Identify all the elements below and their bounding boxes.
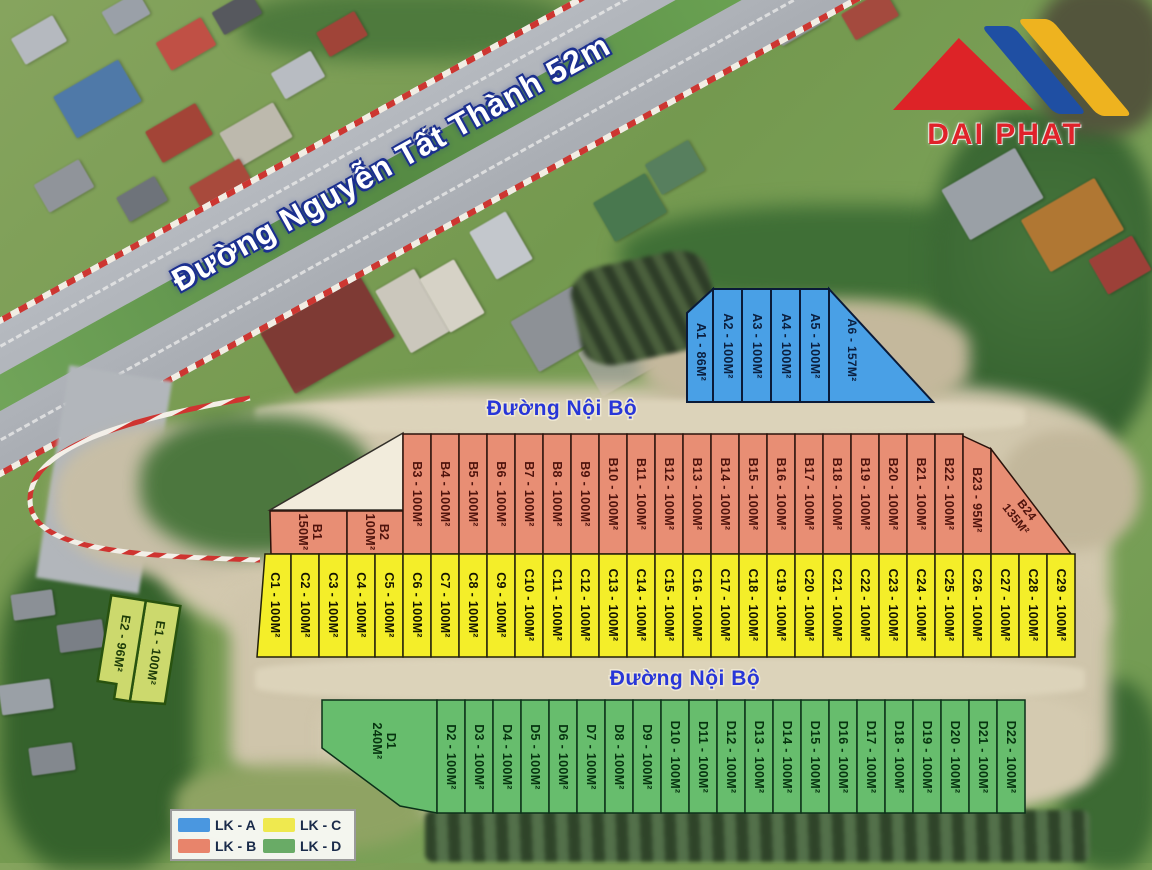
plot-label-C14: C14 - 100M² [634,569,648,642]
plot-label-D22: D22 - 100M² [1004,721,1018,794]
plot-label-B11: B11 - 100M² [634,458,648,530]
plot-label-B13: B13 - 100M² [690,458,704,531]
block-e-group: E1 - 100M²E2 - 96M² [95,595,180,707]
plot-label-D13: D13 - 100M² [752,721,766,794]
legend-swatch-blue [178,818,210,832]
legend-item-lk-d: LK - D [263,838,348,854]
plot-label-D5: D5 - 100M² [528,724,542,790]
plot-label-A4: A4 - 100M² [779,313,793,379]
plot-label-B14: B14 - 100M² [718,458,732,531]
plot-label-D12: D12 - 100M² [724,721,738,794]
plot-label-C27: C27 - 100M² [998,569,1012,642]
plot-label-D10: D10 - 100M² [668,721,682,794]
plot-label-B23: B23 - 95M² [970,467,984,533]
plot-label-A2: A2 - 100M² [721,313,735,379]
plot-label-D17: D17 - 100M² [864,721,878,794]
unassigned-parcel [270,433,403,510]
plot-label-C12: C12 - 100M² [578,569,592,642]
legend: LK - A LK - C LK - B LK - D [170,809,356,861]
plot-A6 [829,289,933,402]
plot-label-C1: C1 - 100M² [268,572,282,638]
legend-item-lk-c: LK - C [263,817,348,833]
plot-label-C8: C8 - 100M² [466,572,480,638]
internal-road-label-top: Đường Nội Bộ [487,397,637,420]
plot-label-B2: 100M² [363,514,377,551]
plot-label-B7: B7 - 100M² [522,461,536,527]
legend-label: LK - A [215,817,256,833]
plot-label-C17: C17 - 100M² [718,569,732,642]
plot-label-B6: B6 - 100M² [494,461,508,527]
legend-item-lk-a: LK - A [178,817,263,833]
plot-label-C2: C2 - 100M² [298,572,312,638]
plot-label-B4: B4 - 100M² [438,461,452,527]
plot-label-C20: C20 - 100M² [802,569,816,642]
legend-swatch-salmon [178,839,210,853]
plot-label-C10: C10 - 100M² [522,569,536,642]
plot-label-B15: B15 - 100M² [746,458,760,531]
plot-label-D16: D16 - 100M² [836,721,850,794]
plot-label-B17: B17 - 100M² [802,458,816,531]
plot-label-C11: C11 - 100M² [550,569,564,641]
plot-label-C13: C13 - 100M² [606,569,620,642]
plot-label-C23: C23 - 100M² [886,569,900,642]
dai-phat-logo: DAI PHAT [885,14,1135,159]
plot-label-B12: B12 - 100M² [662,458,676,531]
plot-label-B20: B20 - 100M² [886,458,900,531]
plot-label-A3: A3 - 100M² [750,313,764,379]
plot-label-D14: D14 - 100M² [780,721,794,794]
plot-B24 [991,449,1071,554]
plot-label-B1: B1 [310,524,324,541]
plot-label-A5: A5 - 100M² [808,313,822,379]
legend-swatch-green [263,839,295,853]
plot-label-B1: 150M² [296,514,310,551]
plot-label-C4: C4 - 100M² [354,572,368,638]
plot-label-B16: B16 - 100M² [774,458,788,531]
plot-label-D9: D9 - 100M² [640,724,654,790]
plot-label-C28: C28 - 100M² [1026,569,1040,642]
plot-label-C6: C6 - 100M² [410,572,424,638]
legend-item-lk-b: LK - B [178,838,263,854]
plot-label-C5: C5 - 100M² [382,572,396,638]
plot-label-C22: C22 - 100M² [858,569,872,642]
plot-label-D8: D8 - 100M² [612,724,626,790]
plot-label-B22: B22 - 100M² [942,458,956,531]
plot-label-B5: B5 - 100M² [466,461,480,527]
plot-label-D7: D7 - 100M² [584,724,598,790]
plot-label-B21: B21 - 100M² [914,458,928,531]
plot-label-B19: B19 - 100M² [858,458,872,531]
internal-road-label-bottom: Đường Nội Bộ [610,667,760,690]
plot-label-D2: D2 - 100M² [444,724,458,790]
plot-label-C26: C26 - 100M² [970,569,984,642]
plot-label-C3: C3 - 100M² [326,572,340,638]
plot-label-C19: C19 - 100M² [774,569,788,642]
plot-label-D6: D6 - 100M² [556,724,570,790]
plot-label-C24: C24 - 100M² [914,569,928,642]
plot-label-A6: A6 - 157M² [845,318,859,381]
legend-label: LK - B [215,838,256,854]
plot-label-D1: D1 [384,733,398,750]
plot-label-B8: B8 - 100M² [550,461,564,527]
plot-label-C18: C18 - 100M² [746,569,760,642]
plot-label-B2: B2 [377,524,391,541]
plot-label-D20: D20 - 100M² [948,721,962,794]
plot-label-D3: D3 - 100M² [472,724,486,790]
legend-label: LK - D [300,838,341,854]
plot-label-B9: B9 - 100M² [578,461,592,527]
plot-label-C7: C7 - 100M² [438,572,452,638]
plot-label-C16: C16 - 100M² [690,569,704,642]
legend-label: LK - C [300,817,341,833]
plot-label-D21: D21 - 100M² [976,721,990,794]
plot-label-D4: D4 - 100M² [500,724,514,790]
plot-label-A1: A1 - 86M² [694,323,708,381]
plot-label-D19: D19 - 100M² [920,721,934,794]
plot-label-C21: C21 - 100M² [830,569,844,642]
plot-label-C9: C9 - 100M² [494,572,508,638]
plot-label-C15: C15 - 100M² [662,569,676,642]
plot-label-C29: C29 - 100M² [1054,569,1068,642]
plot-label-B10: B10 - 100M² [606,458,620,531]
plot-label-D15: D15 - 100M² [808,721,822,794]
project-boundary-stripe [30,398,260,560]
plot-label-C25: C25 - 100M² [942,569,956,642]
plot-label-B3: B3 - 100M² [410,461,424,527]
plot-label-B18: B18 - 100M² [830,458,844,531]
plot-label-D18: D18 - 100M² [892,721,906,794]
logo-text: DAI PHAT [885,118,1125,152]
plot-label-D1: 240M² [370,723,384,760]
legend-swatch-yellow [263,818,295,832]
plot-label-D11: D11 - 100M² [696,721,710,793]
